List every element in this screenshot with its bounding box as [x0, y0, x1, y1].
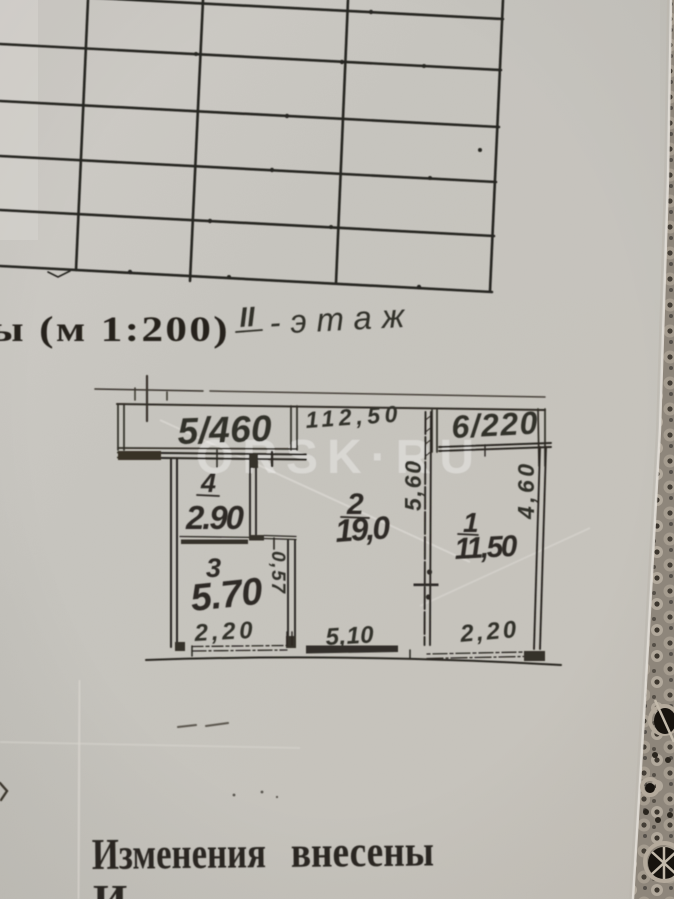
svg-text:Изменения: Изменения [92, 828, 267, 879]
svg-text:5.70: 5.70 [189, 571, 265, 620]
svg-text:5,60: 5,60 [400, 461, 426, 511]
svg-text:ы (м 1:200): ы (м 1:200) [0, 309, 230, 349]
svg-text:И: И [93, 876, 127, 899]
svg-text:4: 4 [200, 468, 216, 498]
svg-text:0,57: 0,57 [267, 551, 288, 594]
svg-text:2,20: 2,20 [193, 617, 254, 647]
svg-text:5,10: 5,10 [325, 621, 375, 651]
svg-text:внесены: внесены [291, 826, 435, 876]
svg-text:11,50: 11,50 [454, 530, 519, 566]
svg-text:2.90: 2.90 [185, 499, 245, 536]
svg-text:19,0: 19,0 [334, 509, 392, 549]
svg-text:2,20: 2,20 [458, 616, 518, 648]
svg-text:5/460: 5/460 [177, 408, 273, 452]
svg-text:6/220: 6/220 [450, 405, 538, 445]
svg-text:4,60: 4,60 [513, 464, 539, 520]
